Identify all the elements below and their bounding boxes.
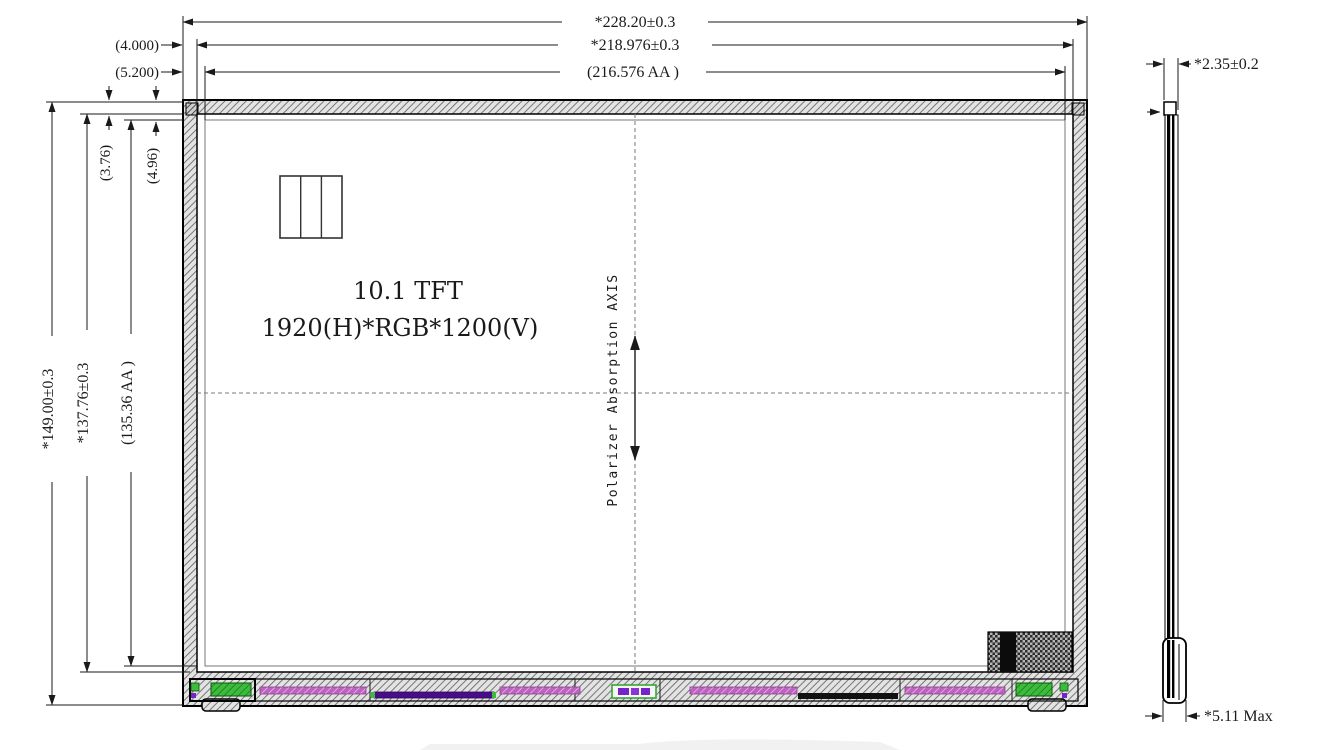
fpc-strip-3 xyxy=(690,687,797,694)
driver-ic-block xyxy=(988,632,1072,672)
side-top-cap xyxy=(1164,102,1176,115)
chip-purple-left xyxy=(191,693,196,698)
dim-glass-width: *218.976±0.3 xyxy=(591,37,680,54)
panel-size-label: 10.1 TFT xyxy=(353,277,463,305)
dimensions-left: *149.00±0.3 *137.76±0.3 (135.36 AA ) (3.… xyxy=(40,86,197,705)
tick-green-1 xyxy=(371,692,375,698)
side-profile xyxy=(1165,115,1178,642)
fpc-strip-4 xyxy=(905,687,1005,694)
tick-green-2 xyxy=(492,692,496,698)
polarizer-axis-label: Polarizer Absorption AXIS xyxy=(606,273,621,506)
dim-gap-top-active: (4.96) xyxy=(145,148,161,184)
tft-panel-technical-drawing: 10.1 TFT 1920(H)*RGB*1200(V) Polarizer A… xyxy=(0,0,1333,750)
fpc-strip-black xyxy=(798,693,898,699)
side-view: *2.35±0.2 *5.11 Max xyxy=(1145,56,1273,725)
dimension-thickness-max: *5.11 Max xyxy=(1145,700,1273,725)
rgb-pixel-box xyxy=(280,176,342,238)
dim-active-height: (135.36 AA ) xyxy=(119,361,136,445)
side-bottom-bulge xyxy=(1163,638,1186,703)
dim-active-width: (216.576 AA ) xyxy=(587,64,679,81)
fpc-strip-2 xyxy=(500,687,580,694)
scan-artifact xyxy=(420,739,900,750)
dim-thickness-max: *5.11 Max xyxy=(1204,708,1273,725)
dim-glass-height: *137.76±0.3 xyxy=(75,363,92,444)
dimension-thickness: *2.35±0.2 xyxy=(1146,56,1259,112)
front-view: 10.1 TFT 1920(H)*RGB*1200(V) Polarizer A… xyxy=(183,100,1087,711)
dim-gap-left-glass: (4.000) xyxy=(115,38,159,54)
chip-green-left xyxy=(191,683,199,691)
fpc-strip-1 xyxy=(260,687,366,694)
dim-outline-height: *149.00±0.3 xyxy=(40,369,57,450)
dim-outline-width: *228.20±0.3 xyxy=(595,14,676,31)
dim-thickness: *2.35±0.2 xyxy=(1194,56,1259,73)
drawing-svg: 10.1 TFT 1920(H)*RGB*1200(V) Polarizer A… xyxy=(0,0,1333,750)
panel-resolution-label: 1920(H)*RGB*1200(V) xyxy=(262,314,539,342)
corner-pad-top-left xyxy=(186,103,198,115)
dim-gap-top-glass: (3.76) xyxy=(98,145,114,181)
connector-label xyxy=(612,685,656,698)
corner-pad-top-right xyxy=(1072,103,1084,115)
fpc-strip-dark xyxy=(374,692,494,698)
chip-green-right xyxy=(1060,683,1068,691)
chip-purple-right xyxy=(1062,693,1067,698)
component-green-right xyxy=(1016,683,1052,696)
component-green-left xyxy=(211,683,251,696)
dim-gap-left-active: (5.200) xyxy=(115,65,159,81)
